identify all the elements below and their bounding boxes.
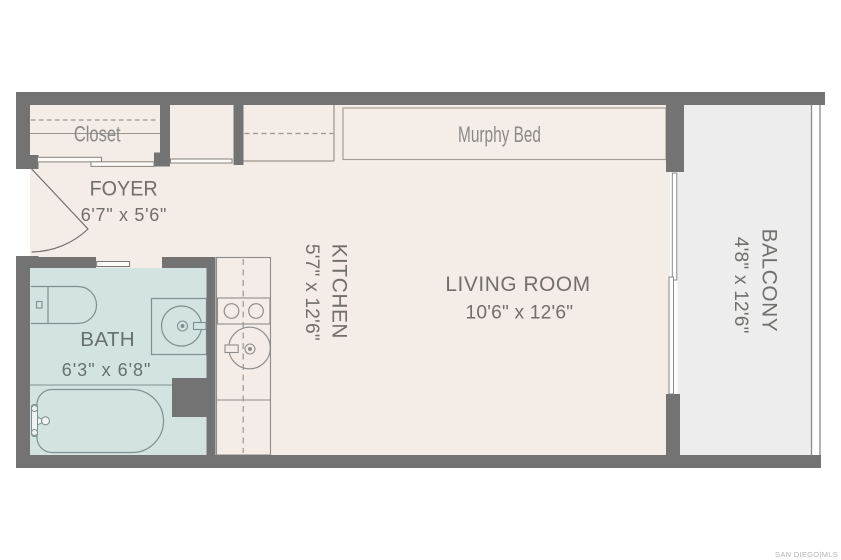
svg-text:5'7" x 12'6": 5'7" x 12'6" (301, 244, 322, 341)
svg-text:FOYER: FOYER (90, 177, 158, 201)
svg-text:BALCONY: BALCONY (758, 229, 781, 333)
svg-text:4'8" x 12'6": 4'8" x 12'6" (730, 237, 751, 334)
svg-text:Closet: Closet (74, 122, 121, 147)
svg-text:SAN DIEGO|MLS: SAN DIEGO|MLS (775, 550, 838, 559)
svg-text:6'7" x 5'6": 6'7" x 5'6" (81, 205, 167, 225)
svg-text:6'3" x 6'8": 6'3" x 6'8" (62, 360, 152, 380)
svg-text:BATH: BATH (80, 328, 135, 351)
svg-text:Murphy Bed: Murphy Bed (458, 123, 541, 147)
svg-text:LIVING ROOM: LIVING ROOM (445, 273, 590, 296)
svg-text:10'6" x 12'6": 10'6" x 12'6" (465, 303, 573, 324)
svg-text:KITCHEN: KITCHEN (328, 244, 351, 339)
